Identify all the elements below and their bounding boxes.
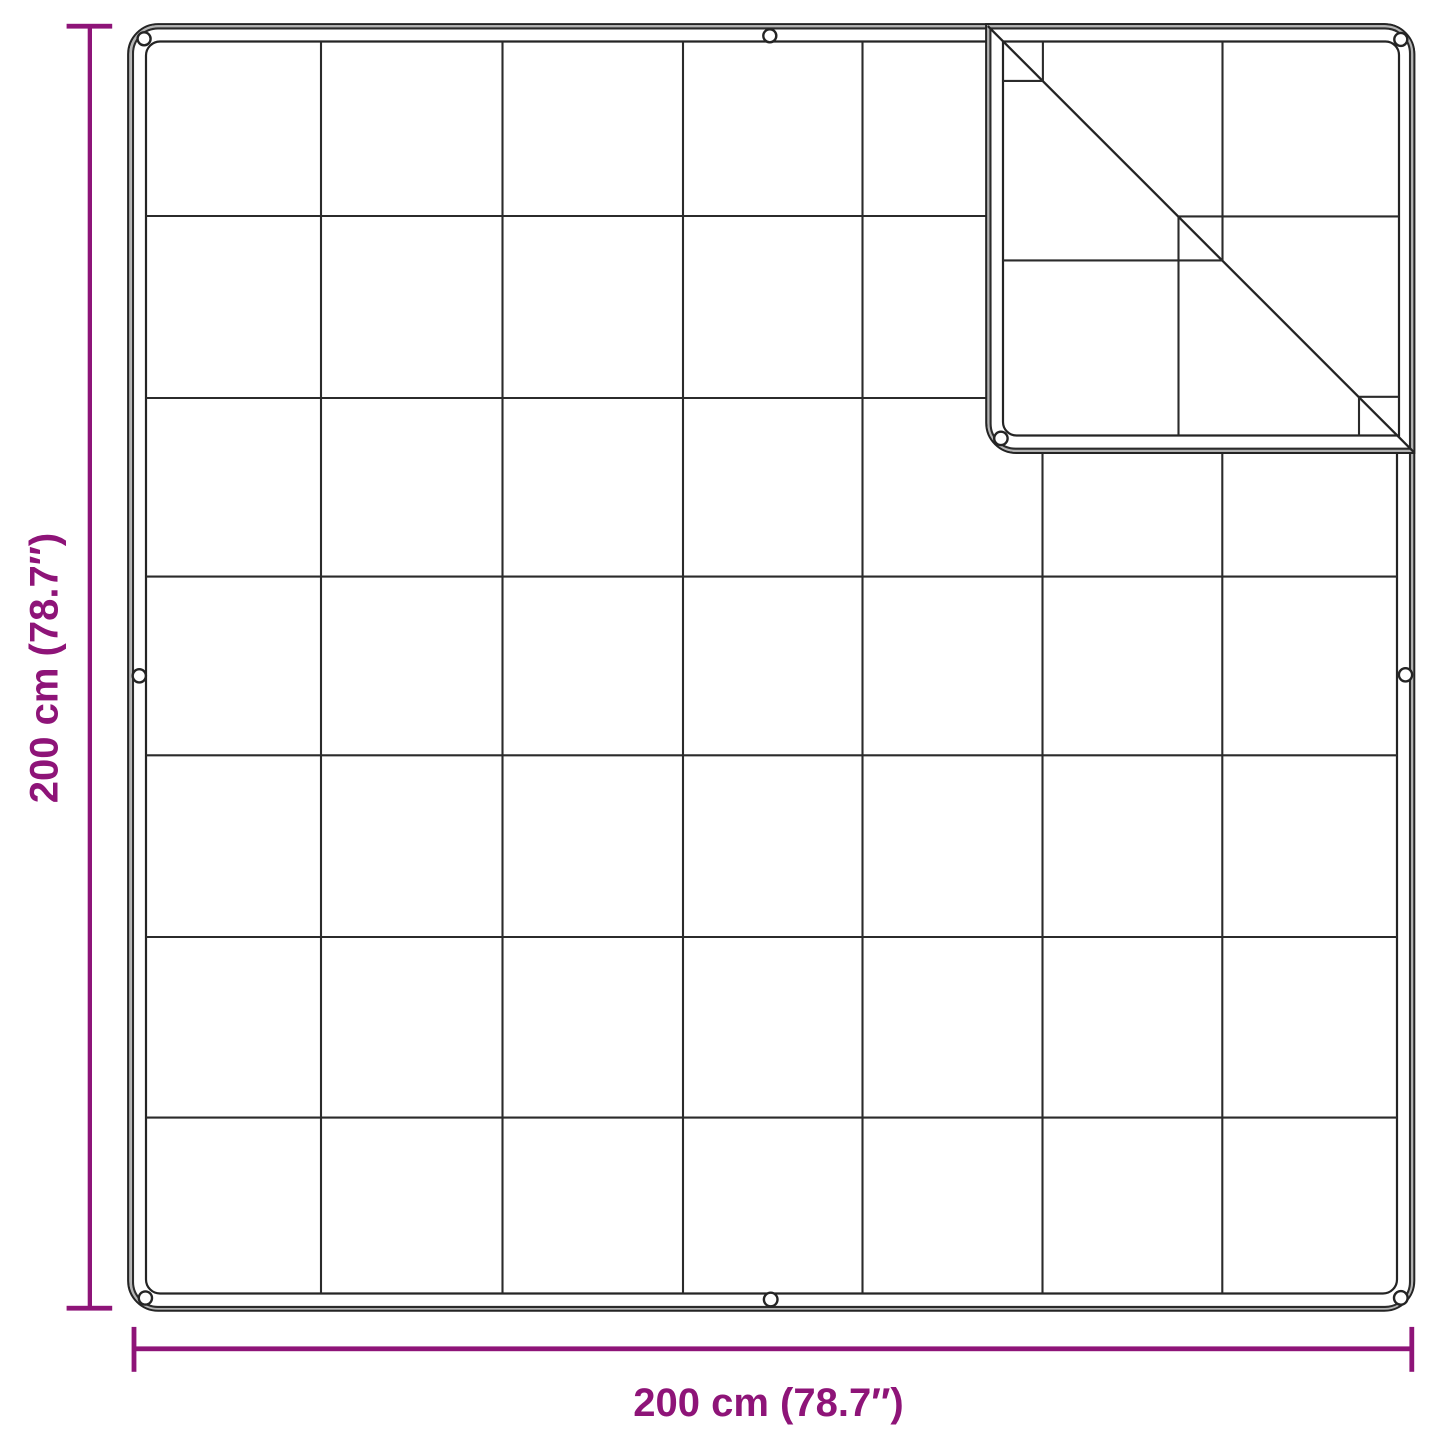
svg-text:200 cm (78.7″): 200 cm (78.7″) — [23, 533, 67, 803]
svg-text:200 cm (78.7″): 200 cm (78.7″) — [633, 1381, 903, 1425]
